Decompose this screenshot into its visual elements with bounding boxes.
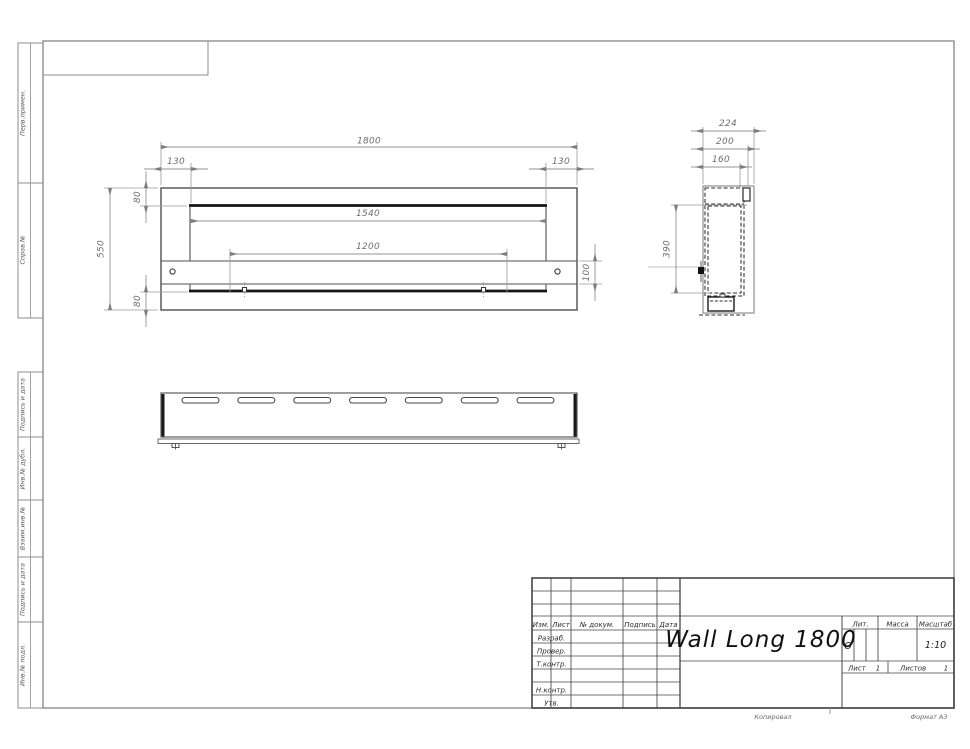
tb-mass-label: Масса [886,621,908,629]
bottom-view [158,393,579,450]
format-note: Формат А3 [910,713,947,721]
side-top-bracket [743,188,750,201]
tb-col-izm: Изм. [533,621,549,629]
tb-sheets-value: 1 [944,665,948,673]
margin-label-inv-dubl: Инв.№ дубл. [19,448,27,490]
margin-label-sprav-no: Справ.№ [19,235,27,264]
tb-col-podpis: Подпись [624,621,656,629]
dim-left-inset: 130 [167,157,185,167]
side-burner-box [708,297,734,311]
sheet-frame [43,41,954,708]
front-view-dimensions: 1800 130 130 80 550 1540 1200 100 [97,137,603,328]
margin-label-podpis-data-2: Подпись и дата [19,563,27,616]
strip-tab-left [172,444,179,450]
tb-row-utv: Утв. [544,700,559,708]
tb-col-list: Лист [551,621,571,629]
tb-scale-value: 1:10 [925,640,946,651]
drawing-title: Wall Long 1800 [665,627,857,653]
drawing-canvas: Перв.примен. Справ.№ Подпись и дата Инв.… [0,0,970,749]
title-block: Изм. Лист № докум. Подпись Дата Разраб. … [532,578,954,708]
tb-row-nkontr: Н.контр. [536,687,567,695]
tb-sheet-value: 1 [876,665,880,673]
front-strip [158,439,579,444]
dim-overall-height: 550 [97,240,107,258]
dim-right-inset: 130 [552,157,570,167]
tb-sheets-label: Листов [899,665,926,673]
left-margin-boxes: Перв.примен. Справ.№ Подпись и дата Инв.… [18,43,43,708]
margin-label-podpis-data-1: Подпись и дата [19,378,27,431]
tb-row-razrab: Разраб. [538,635,566,643]
dim-insert-height: 390 [663,240,673,258]
footer-notes: Копировал Формат А3 [754,708,947,721]
mounting-hole-right [555,269,560,274]
dim-overall-depth: 224 [719,119,737,129]
dim-bottom-flange: 80 [133,295,143,307]
dim-top-flange: 80 [133,191,143,203]
mounting-hole-left [170,269,175,274]
drawing-sheet: Перв.примен. Справ.№ Подпись и дата Инв.… [0,0,970,749]
margin-label-perv-primen: Перв.примен. [19,90,27,136]
top-designation-box [43,41,208,75]
dim-band-height: 100 [582,263,592,281]
copy-note: Копировал [754,713,791,721]
strip-tab-right [558,444,565,450]
dim-top-opening: 160 [712,155,730,165]
margin-label-inv-podl: Инв.№ подл. [19,644,27,686]
tb-col-dokum: № докум. [579,621,615,629]
margin-label-vzaim-inv: Взаим.инв.№ [19,506,27,550]
tb-scale-label: Масштаб [919,621,953,629]
tb-row-prover: Провер. [537,648,566,656]
tb-sheet-label: Лист [847,665,867,673]
dim-inner-width: 1540 [356,209,380,219]
tb-row-tkontr: Т.контр. [536,661,566,669]
dim-slot-width: 1200 [356,242,380,252]
dim-mid-depth: 200 [716,137,734,147]
dim-overall-width: 1800 [357,137,381,147]
